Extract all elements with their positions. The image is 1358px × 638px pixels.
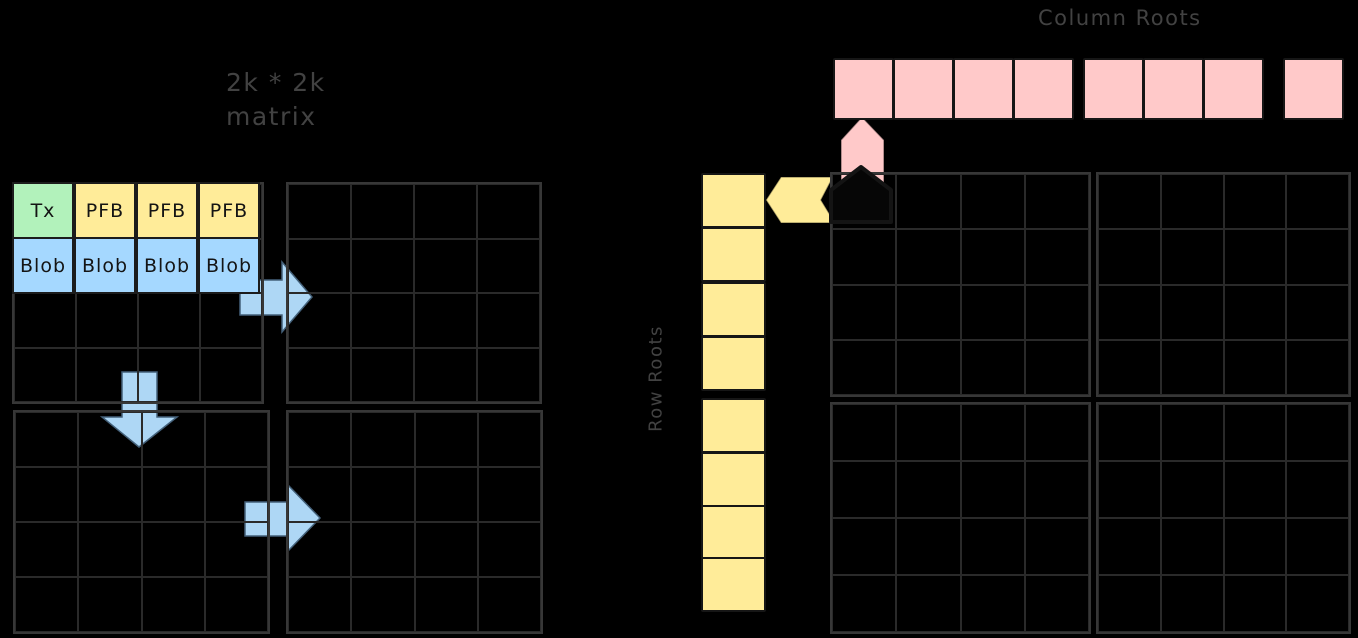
grid-cell [142,412,205,467]
left-matrix-quadrant-br [286,410,543,634]
grid-cell [832,575,896,632]
grid-cell [15,577,78,632]
grid-cell [832,518,896,575]
tile-label: Blob [20,255,66,277]
grid-cell [896,174,960,229]
left-matrix-quadrant-tr [286,182,542,404]
grid-cell [1224,575,1287,632]
grid-cell [15,467,78,522]
grid-cell [414,184,477,239]
grid-cell [832,340,896,395]
blob-cell-blob: Blob [12,237,74,294]
grid-cell [832,229,896,284]
grid-cell [1224,518,1287,575]
grid-cell [288,348,351,403]
grid-cell [896,518,960,575]
row-root-square [701,336,766,391]
matrix-size-label: 2k * 2k matrix [226,66,326,134]
grid-cell [78,577,141,632]
tile-label: PFB [86,200,124,222]
grid-cell [288,184,351,239]
grid-cell [832,404,896,461]
grid-cell [477,239,540,294]
grid-cell [832,285,896,340]
grid-cell [1224,229,1287,284]
grid-cell [138,348,200,403]
grid-cell [1161,518,1224,575]
grid-cell [351,467,414,522]
right-matrix-quadrant-tr [1096,172,1351,397]
blob-cell-blob: Blob [198,237,260,294]
column-root-square [833,58,894,120]
grid-cell [1098,518,1161,575]
row-root-square [701,452,766,507]
grid-cell [961,340,1025,395]
column-root-square [1203,58,1264,120]
grid-cell [142,467,205,522]
grid-cell [478,467,541,522]
tile-label: PFB [148,200,186,222]
blob-row: BlobBlobBlobBlob [12,237,260,294]
matrix-size-line1: 2k * 2k [226,66,326,100]
grid-cell [288,293,351,348]
tile-cell-pfb: PFB [198,182,260,239]
right-matrix-quadrant-br [1096,402,1351,634]
grid-cell [15,522,78,577]
grid-cell [1161,404,1224,461]
right-matrix-quadrant-bl [830,402,1091,634]
grid-cell [138,293,200,348]
tile-cell-pfb: PFB [74,182,136,239]
grid-cell [1286,229,1349,284]
grid-cell [76,293,138,348]
grid-cell [1025,461,1089,518]
grid-cell [1098,174,1161,229]
grid-cell [896,229,960,284]
diagram-canvas: TxPFBPFBPFB BlobBlobBlobBlob 2k * 2k mat… [0,0,1358,638]
grid-cell [1286,285,1349,340]
matrix-size-line2: matrix [226,100,326,134]
column-root-square [1143,58,1204,120]
grid-cell [961,575,1025,632]
grid-cell [896,575,960,632]
grid-cell [142,577,205,632]
corner-marker-pentagon-icon [827,163,897,227]
tile-label: PFB [210,200,248,222]
grid-cell [1286,518,1349,575]
column-root-square [953,58,1014,120]
grid-cell [1161,229,1224,284]
grid-cell [896,285,960,340]
grid-cell [961,518,1025,575]
grid-cell [1286,461,1349,518]
grid-cell [1286,404,1349,461]
row-root-square [701,505,766,560]
grid-cell [205,412,268,467]
grid-cell [1286,174,1349,229]
grid-cell [1098,404,1161,461]
grid-cell [1286,575,1349,632]
row-root-square [701,557,766,612]
grid-cell [1161,174,1224,229]
grid-cell [1161,461,1224,518]
grid-cell [1224,404,1287,461]
tile-label: Blob [82,255,128,277]
grid-cell [1025,340,1089,395]
grid-cell [415,577,478,632]
row-root-square [701,398,766,453]
grid-cell [414,239,477,294]
grid-cell [142,522,205,577]
grid-cell [961,285,1025,340]
grid-cell [1161,575,1224,632]
grid-cell [205,577,268,632]
grid-cell [351,348,414,403]
grid-cell [1224,174,1287,229]
grid-cell [961,461,1025,518]
grid-cell [1161,340,1224,395]
grid-cell [1224,461,1287,518]
grid-cell [477,348,540,403]
grid-cell [1098,340,1161,395]
grid-cell [414,348,477,403]
column-root-square [1283,58,1344,120]
grid-cell [477,184,540,239]
grid-cell [1098,575,1161,632]
grid-cell [288,239,351,294]
grid-cell [15,412,78,467]
grid-cell [1161,285,1224,340]
grid-cell [78,522,141,577]
column-root-square [893,58,954,120]
grid-cell [200,293,262,348]
grid-cell [1025,518,1089,575]
row-root-square [701,227,766,282]
grid-cell [351,293,414,348]
grid-cell [205,522,268,577]
grid-cell [1025,229,1089,284]
grid-cell [288,577,351,632]
row-root-square [701,282,766,337]
tile-row: TxPFBPFBPFB [12,182,260,239]
row-root-square [701,173,766,228]
grid-cell [1025,285,1089,340]
grid-cell [1098,229,1161,284]
grid-cell [351,522,414,577]
grid-cell [415,522,478,577]
grid-cell [351,412,414,467]
tile-label: Tx [31,200,56,222]
grid-cell [961,404,1025,461]
grid-cell [200,348,262,403]
grid-cell [415,412,478,467]
left-matrix-quadrant-bl [13,410,270,634]
grid-cell [477,293,540,348]
grid-cell [14,293,76,348]
grid-cell [478,577,541,632]
column-root-square [1083,58,1144,120]
grid-cell [896,340,960,395]
grid-cell [1286,340,1349,395]
grid-cell [14,348,76,403]
grid-cell [288,467,351,522]
grid-cell [414,293,477,348]
grid-cell [1224,340,1287,395]
grid-cell [78,467,141,522]
grid-cell [896,461,960,518]
grid-cell [351,239,414,294]
column-root-square [1013,58,1074,120]
grid-cell [415,467,478,522]
column-roots-label: Column Roots [1038,6,1202,30]
grid-cell [896,404,960,461]
row-roots-label: Row Roots [646,299,667,459]
grid-cell [205,467,268,522]
grid-cell [76,348,138,403]
grid-cell [288,522,351,577]
grid-cell [351,184,414,239]
blob-cell-blob: Blob [74,237,136,294]
tile-label: Blob [206,255,252,277]
grid-cell [1098,461,1161,518]
grid-cell [1025,174,1089,229]
grid-cell [478,412,541,467]
blob-cell-blob: Blob [136,237,198,294]
grid-cell [1025,575,1089,632]
tile-cell-tx: Tx [12,182,74,239]
grid-cell [288,412,351,467]
grid-cell [961,174,1025,229]
grid-cell [478,522,541,577]
grid-cell [1025,404,1089,461]
grid-cell [351,577,414,632]
grid-cell [832,461,896,518]
grid-cell [961,229,1025,284]
tile-label: Blob [144,255,190,277]
grid-cell [1224,285,1287,340]
grid-cell [78,412,141,467]
grid-cell [1098,285,1161,340]
tile-cell-pfb: PFB [136,182,198,239]
